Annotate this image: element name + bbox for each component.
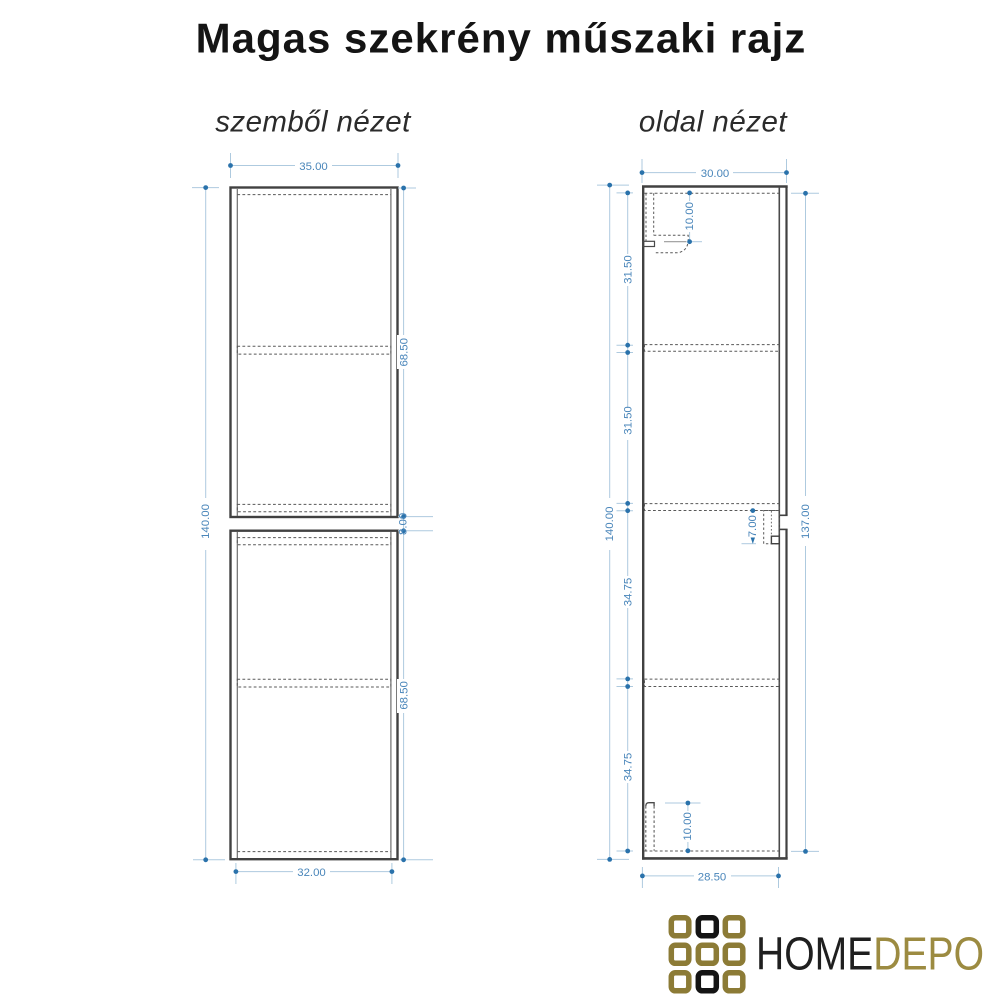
svg-text:68.50: 68.50 [399,338,411,367]
svg-text:szemből nézet: szemből nézet [215,106,412,139]
svg-text:8.00: 8.00 [397,513,409,535]
svg-text:30.00: 30.00 [701,168,730,180]
svg-text:34.75: 34.75 [623,753,635,782]
svg-text:Magas szekrény műszaki rajz: Magas szekrény műszaki rajz [196,15,807,62]
svg-text:35.00: 35.00 [299,161,328,173]
svg-text:oldal nézet: oldal nézet [639,106,788,139]
svg-text:68.50: 68.50 [399,681,411,710]
svg-text:10.00: 10.00 [682,812,694,841]
svg-text:32.00: 32.00 [297,867,326,879]
svg-text:31.50: 31.50 [623,406,635,435]
svg-text:10.00: 10.00 [684,202,696,231]
svg-text:31.50: 31.50 [623,255,635,284]
svg-text:34.75: 34.75 [623,578,635,607]
svg-text:140.00: 140.00 [200,504,212,539]
svg-text:HOMEDEPO: HOMEDEPO [756,929,984,981]
svg-text:28.50: 28.50 [698,871,727,883]
svg-text:140.00: 140.00 [604,507,616,542]
svg-text:137.00: 137.00 [800,504,812,539]
svg-text:7.00: 7.00 [747,515,759,537]
